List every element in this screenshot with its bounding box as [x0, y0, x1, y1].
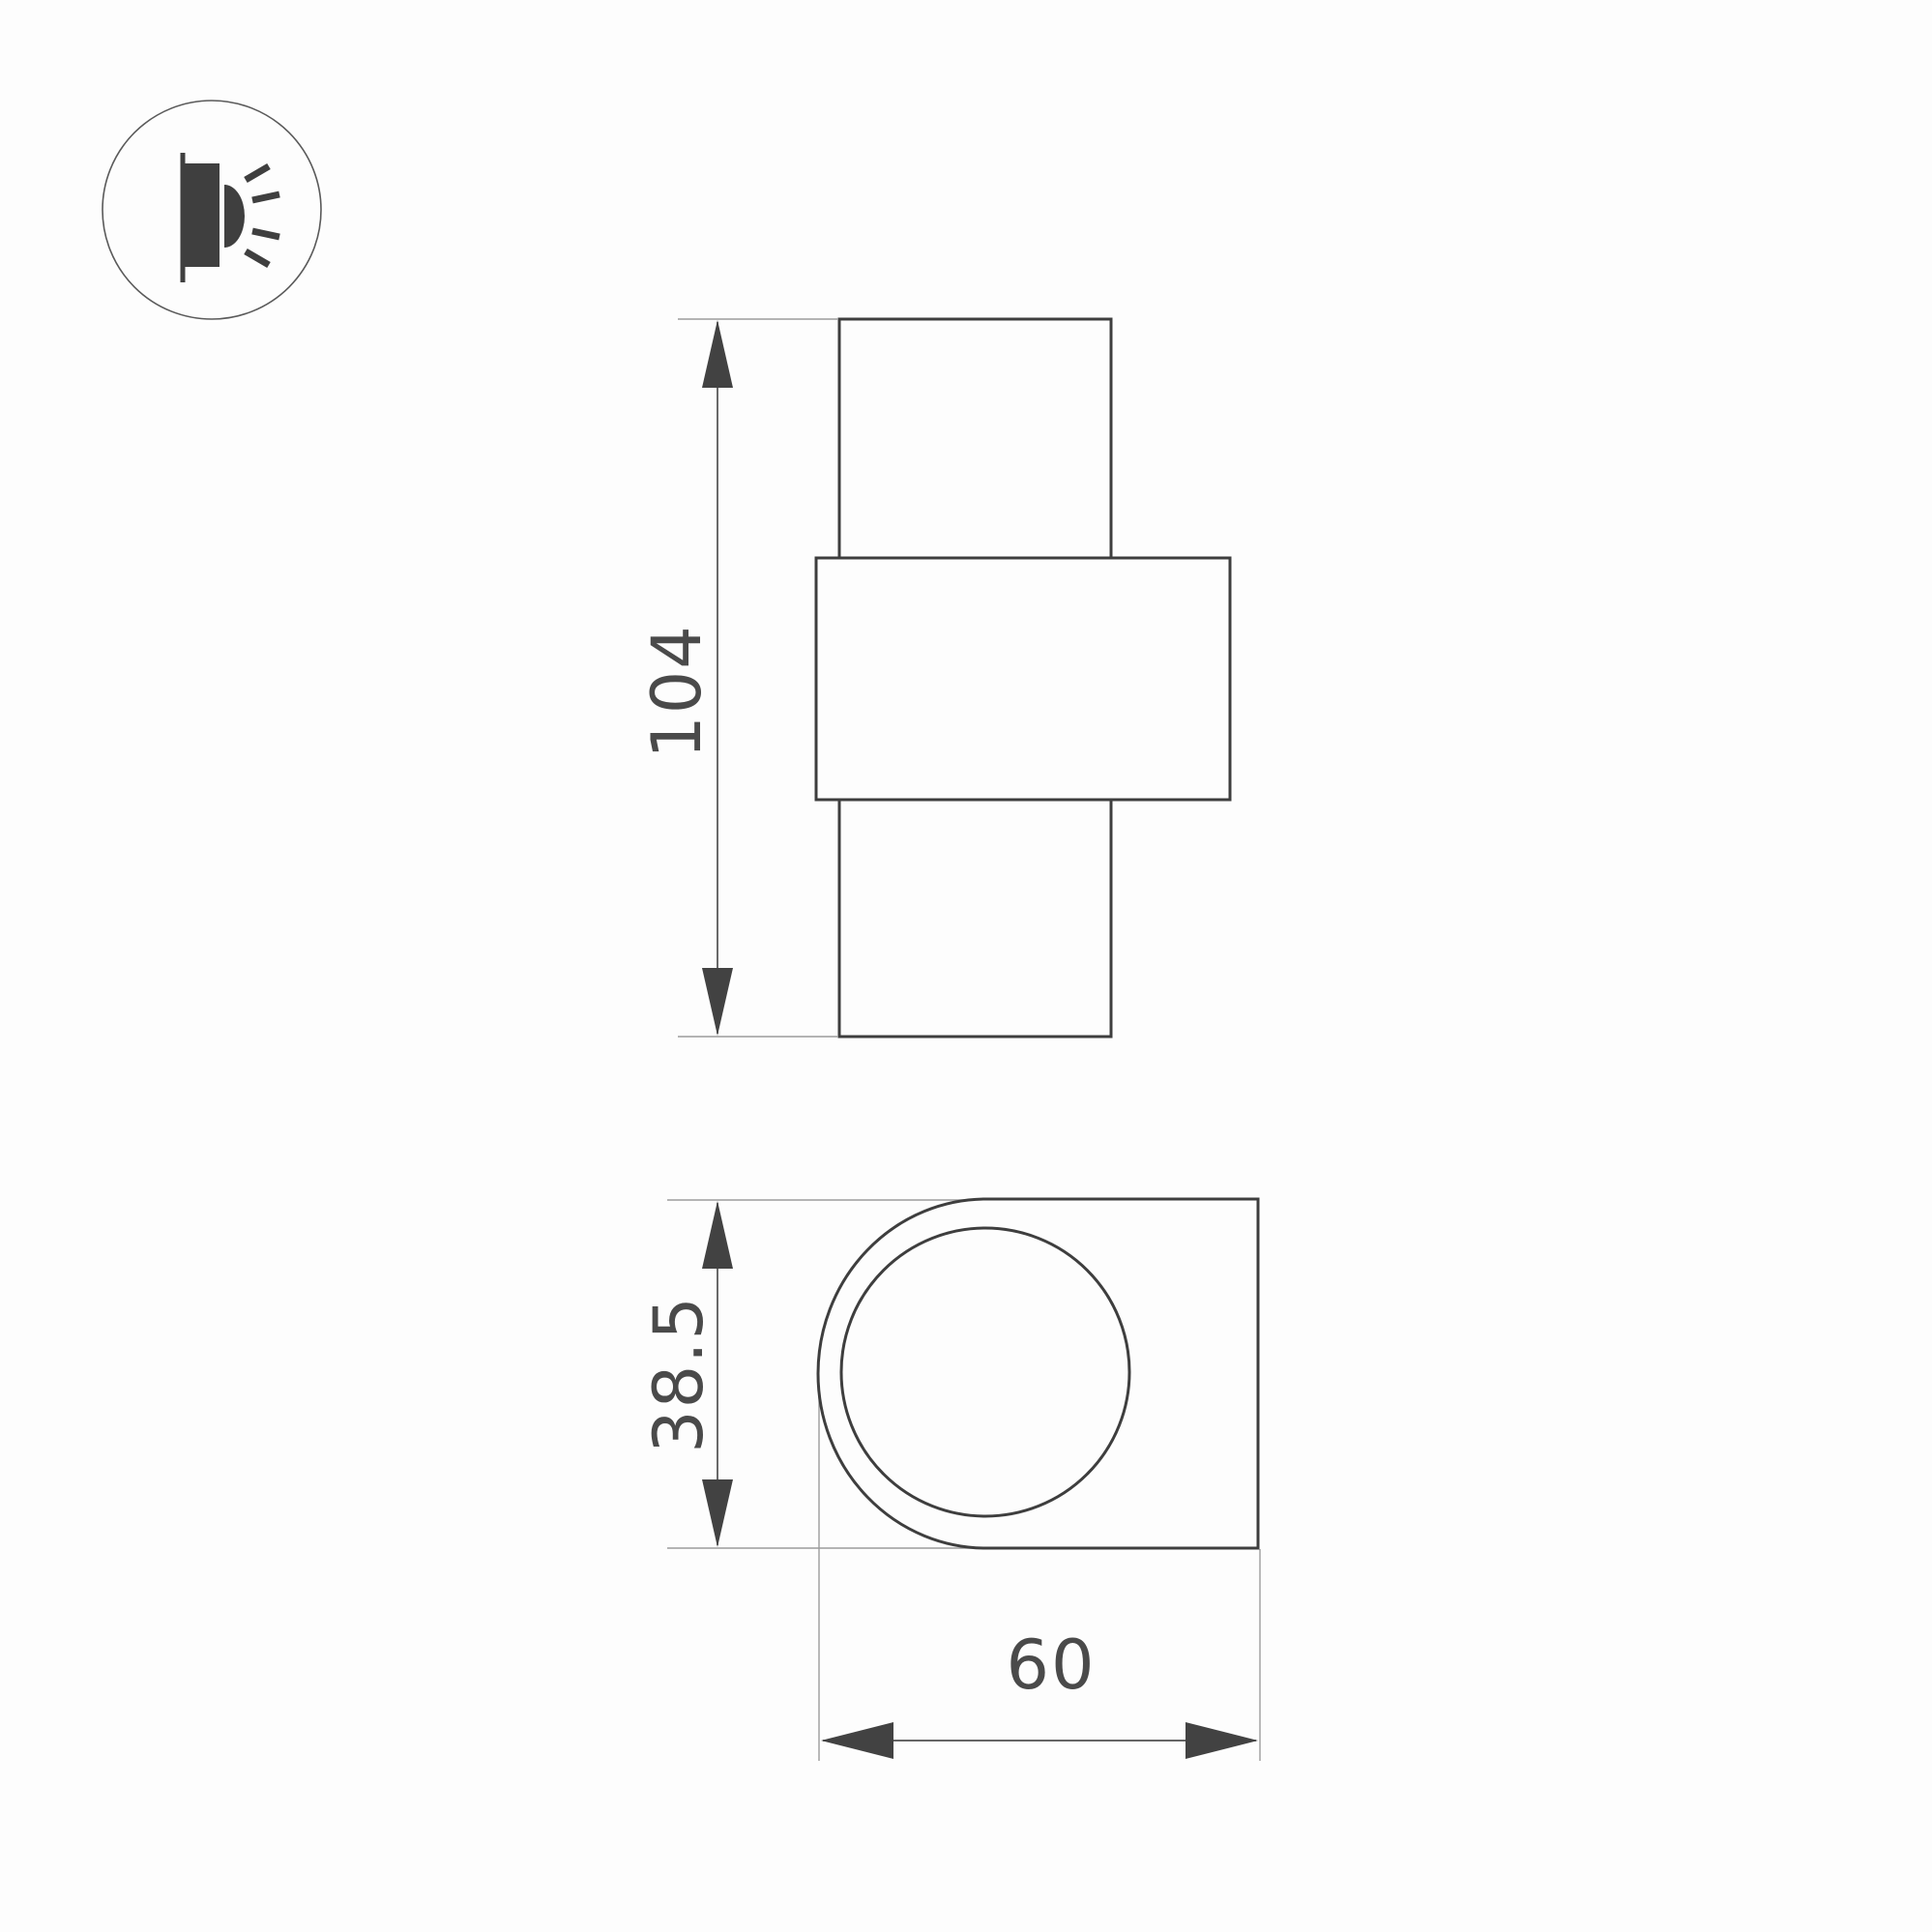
side-width-arrow-right: [1186, 1722, 1258, 1759]
front-dimension-arrow-down: [702, 968, 733, 1036]
front-dimension-arrow-up: [702, 320, 733, 388]
front-top-cylinder: [839, 319, 1111, 558]
side-width-label: 60: [1006, 1625, 1096, 1705]
side-body-outline: [818, 1199, 1258, 1548]
side-height-dimension: 38.5: [639, 1201, 733, 1547]
front-middle-body: [816, 558, 1230, 800]
side-height-label: 38.5: [639, 1295, 718, 1453]
wall-light-icon: [102, 101, 321, 319]
side-width-arrow-left: [821, 1722, 893, 1759]
front-bottom-cylinder: [839, 800, 1111, 1037]
technical-drawing: 104 38.5 60: [0, 0, 1932, 1932]
front-view: 104: [637, 319, 1230, 1037]
side-view: 38.5 60: [639, 1199, 1260, 1761]
icon-light-dome: [224, 185, 245, 248]
side-width-dimension: 60: [821, 1625, 1258, 1759]
side-height-arrow-up: [702, 1201, 733, 1269]
icon-lamp-body: [185, 163, 220, 267]
front-height-label: 104: [637, 624, 717, 759]
icon-light-rays: [246, 166, 279, 265]
side-height-arrow-down: [702, 1479, 733, 1547]
front-height-dimension: 104: [637, 320, 733, 1036]
